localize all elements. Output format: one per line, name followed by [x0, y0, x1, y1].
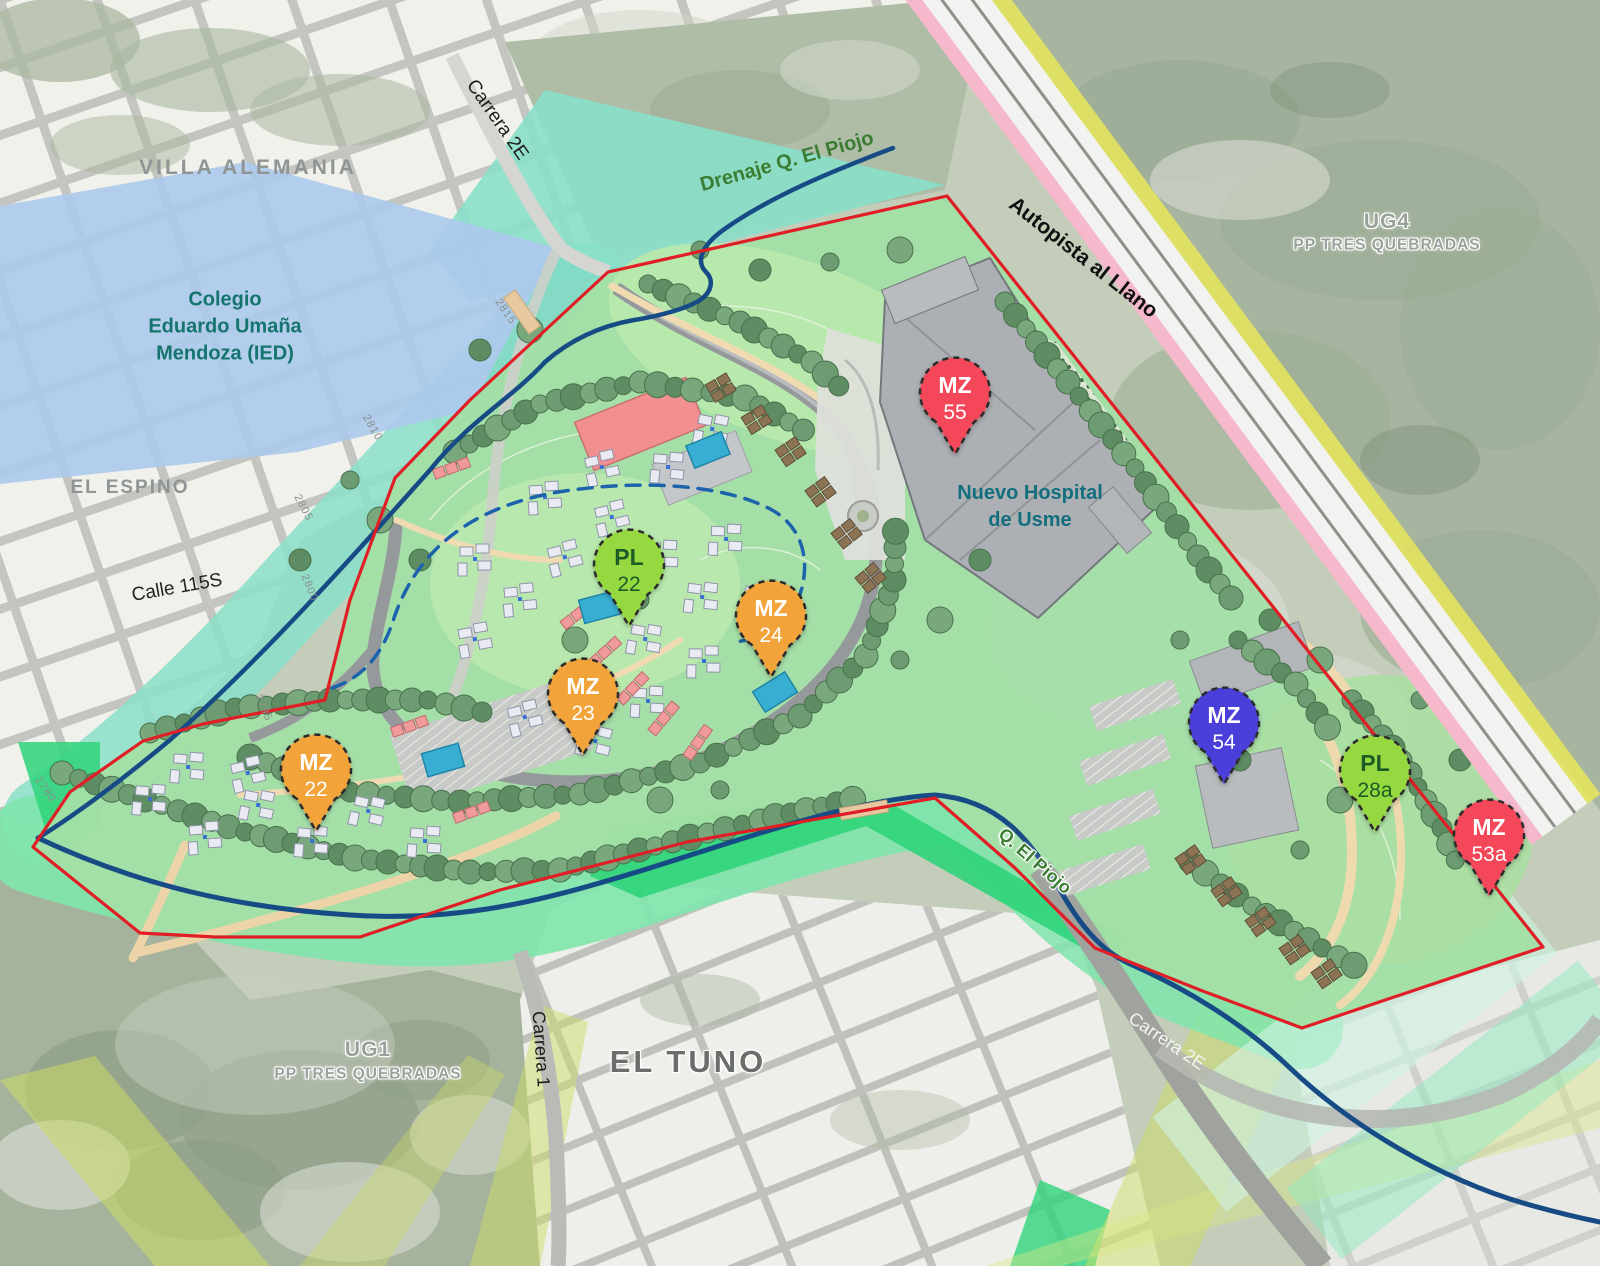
map-stage: VILLA ALEMANIAColegio Eduardo Umaña Mend… — [0, 0, 1600, 1266]
map-pin-pl-22[interactable]: PL22 — [589, 527, 669, 631]
pin-code: 22 — [304, 778, 327, 801]
pin-code: 28a — [1357, 779, 1392, 802]
pin-code: 54 — [1212, 731, 1236, 754]
pin-code: 23 — [571, 702, 594, 725]
pin-code: 55 — [943, 401, 966, 424]
map-pin-mz-54[interactable]: MZ54 — [1184, 685, 1264, 789]
pin-kind: MZ — [1207, 702, 1240, 728]
map-pin-mz-23[interactable]: MZ23 — [543, 656, 623, 760]
pin-code: 53a — [1471, 843, 1506, 866]
pin-kind: MZ — [1472, 814, 1505, 840]
map-pin-pl-28a[interactable]: PL28a — [1335, 733, 1415, 837]
map-pin-mz-55[interactable]: MZ55 — [915, 355, 995, 459]
map-pin-mz-22[interactable]: MZ22 — [276, 732, 356, 836]
map-pin-mz-53a[interactable]: MZ53a — [1449, 797, 1529, 901]
pin-kind: PL — [614, 544, 643, 570]
map-pin-mz-24[interactable]: MZ24 — [731, 578, 811, 682]
pin-kind: MZ — [299, 749, 332, 775]
pin-code: 22 — [617, 573, 640, 596]
pin-kind: PL — [1360, 750, 1389, 776]
pin-kind: MZ — [566, 673, 599, 699]
pin-kind: MZ — [754, 595, 787, 621]
pin-code: 24 — [759, 624, 783, 647]
pin-kind: MZ — [938, 372, 971, 398]
pins-layer: MZ55PL22MZ24MZ23MZ22MZ54PL28aMZ53a — [0, 0, 1600, 1266]
